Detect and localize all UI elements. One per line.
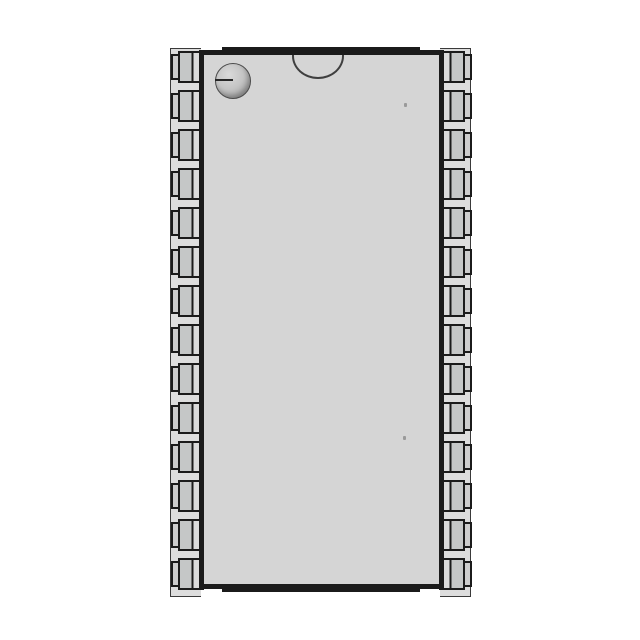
- mold-parting-line-top: [222, 47, 420, 52]
- pin1-indicator: [215, 63, 251, 99]
- mold-parting-line-bottom: [222, 587, 420, 592]
- ic-body: [199, 50, 444, 589]
- mold-mark: [403, 436, 406, 440]
- orientation-notch: [292, 55, 344, 79]
- mold-mark: [404, 103, 407, 107]
- pin1-indicator-tick: [215, 79, 233, 81]
- ic-package-render: [0, 0, 640, 640]
